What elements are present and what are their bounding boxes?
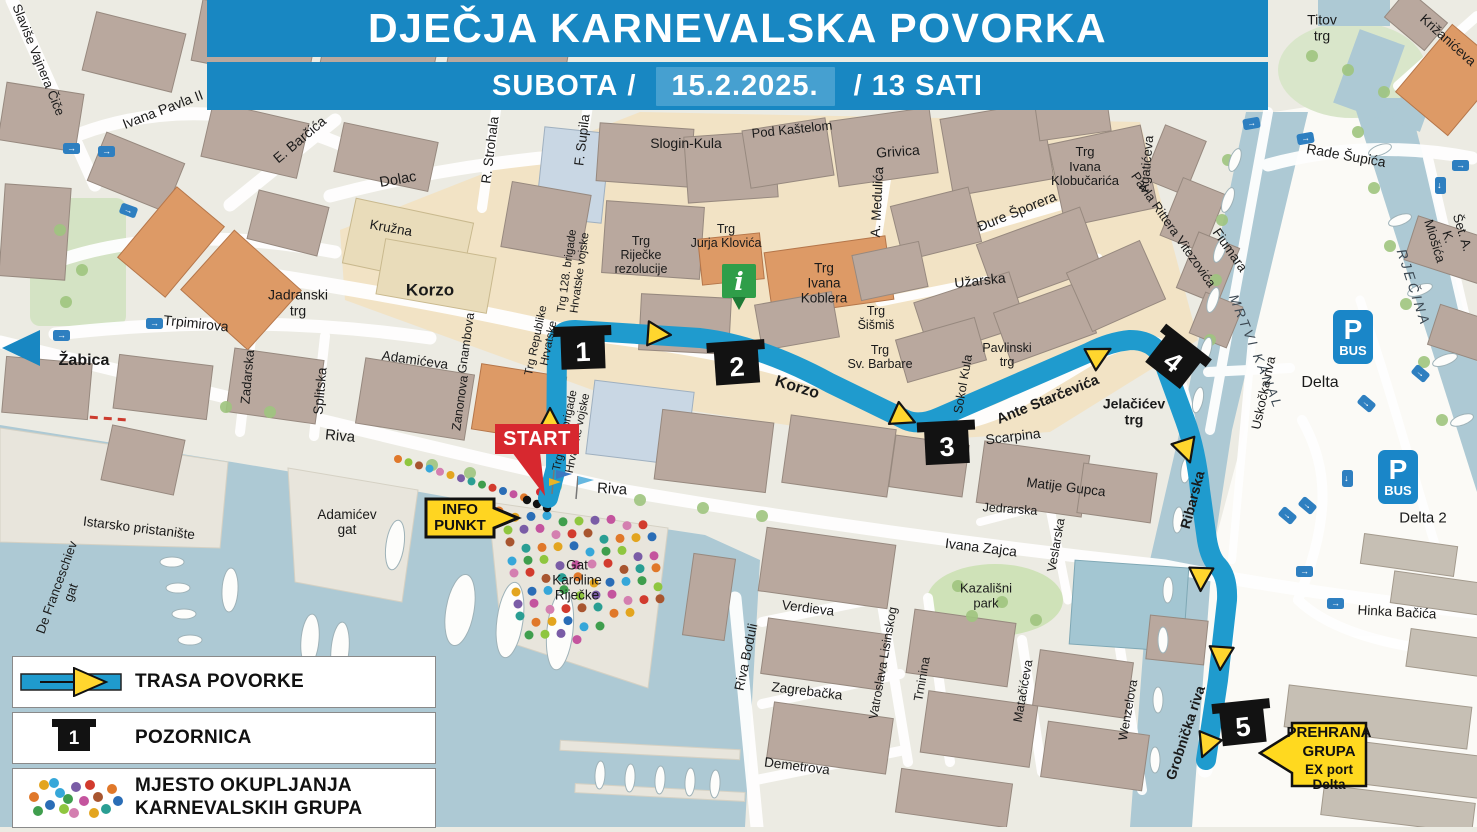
colored-dots-icon [13,775,135,821]
parking-bus-icon-2: P BUS [1378,450,1418,504]
page-title: DJEČJA KARNEVALSKA POVORKA [368,5,1107,52]
one-way-arrow-icon: → [146,318,163,329]
legend-label-stage: POZORNICA [135,727,252,750]
start-sign: START [495,424,579,454]
legend-label-gathering: MJESTO OKUPLJANJA KARNEVALSKIH GRUPA [135,775,362,821]
stage-marker-3: 3 [924,429,970,465]
banner-separator: / [618,70,645,103]
banner-date: 15.2.2025. [656,67,835,106]
banner-subtitle-bar: SUBOTA / 15.2.2025. / 13 SATI [207,62,1268,110]
legend-row-stage: 1 POZORNICA [12,712,436,764]
info-point-icon: i [722,264,756,298]
one-way-arrow-icon: → [1296,566,1313,577]
start-pointer-icon [500,452,560,502]
banner-day: SUBOTA [492,70,618,103]
banner-separator2: / [845,70,872,103]
one-way-arrow-icon: → [1435,177,1446,194]
banner-title-bar: DJEČJA KARNEVALSKA POVORKA [207,0,1268,57]
stage-marker-2: 2 [714,349,760,386]
parking-bus-icon: P BUS [1333,310,1373,364]
info-punkt-label: INFO PUNKT [427,499,493,537]
one-way-arrow-icon: → [98,146,115,157]
prehrana-sign: PREHRANA GRUPA EX port Delta [1258,720,1370,795]
legend-row-gathering: MJESTO OKUPLJANJA KARNEVALSKIH GRUPA [12,768,436,828]
route-arrow-icon [13,667,135,697]
info-punkt-sign: INFO PUNKT [424,497,524,546]
banner-time: 13 SATI [872,70,983,103]
stage-marker-1: 1 [560,334,605,370]
one-way-arrow-icon: → [1342,470,1353,487]
one-way-arrow-icon: → [63,143,80,154]
one-way-arrow-icon: → [1327,598,1344,609]
stage-icon: 1 [13,726,135,751]
start-label: START [503,428,571,451]
legend-row-route: TRASA POVORKE [12,656,436,708]
one-way-arrow-icon: → [1452,160,1469,171]
legend-label-route: TRASA POVORKE [135,671,304,694]
prehrana-label: PREHRANA GRUPA EX port Delta [1292,724,1366,792]
legend: TRASA POVORKE 1 POZORNICA MJESTO OKUPLJA… [12,656,436,832]
one-way-arrow-icon: → [53,330,70,341]
